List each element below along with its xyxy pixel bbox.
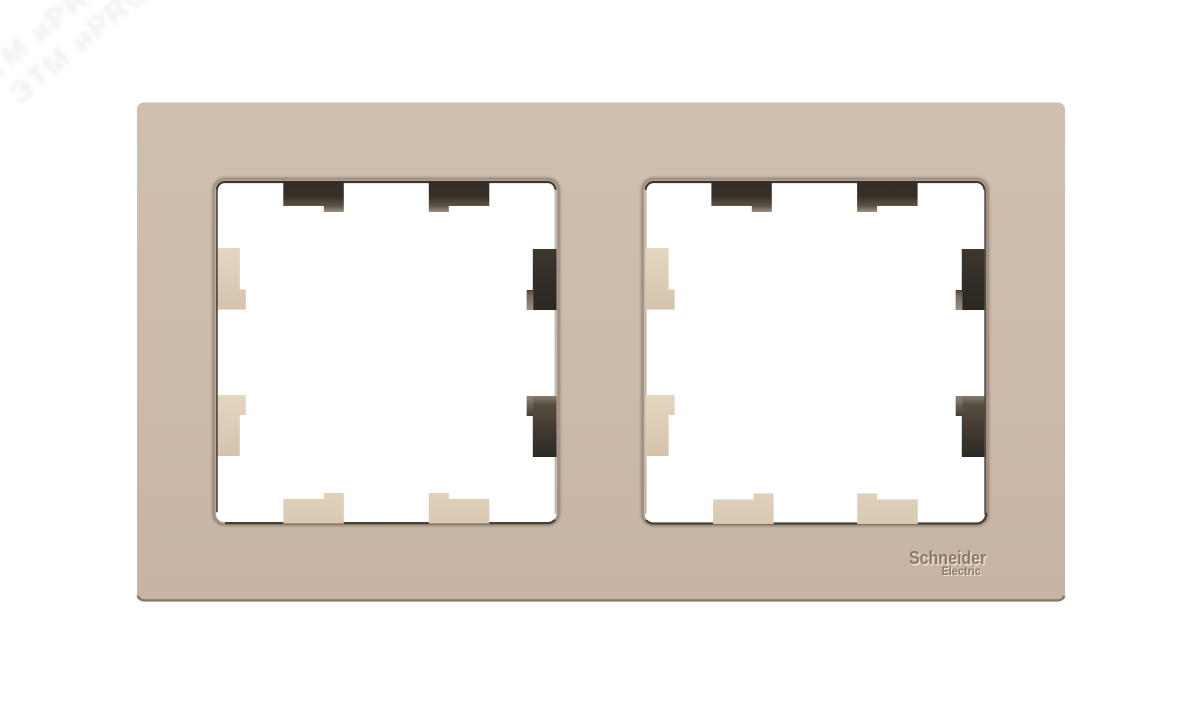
svg-text:Electric: Electric xyxy=(942,566,982,579)
